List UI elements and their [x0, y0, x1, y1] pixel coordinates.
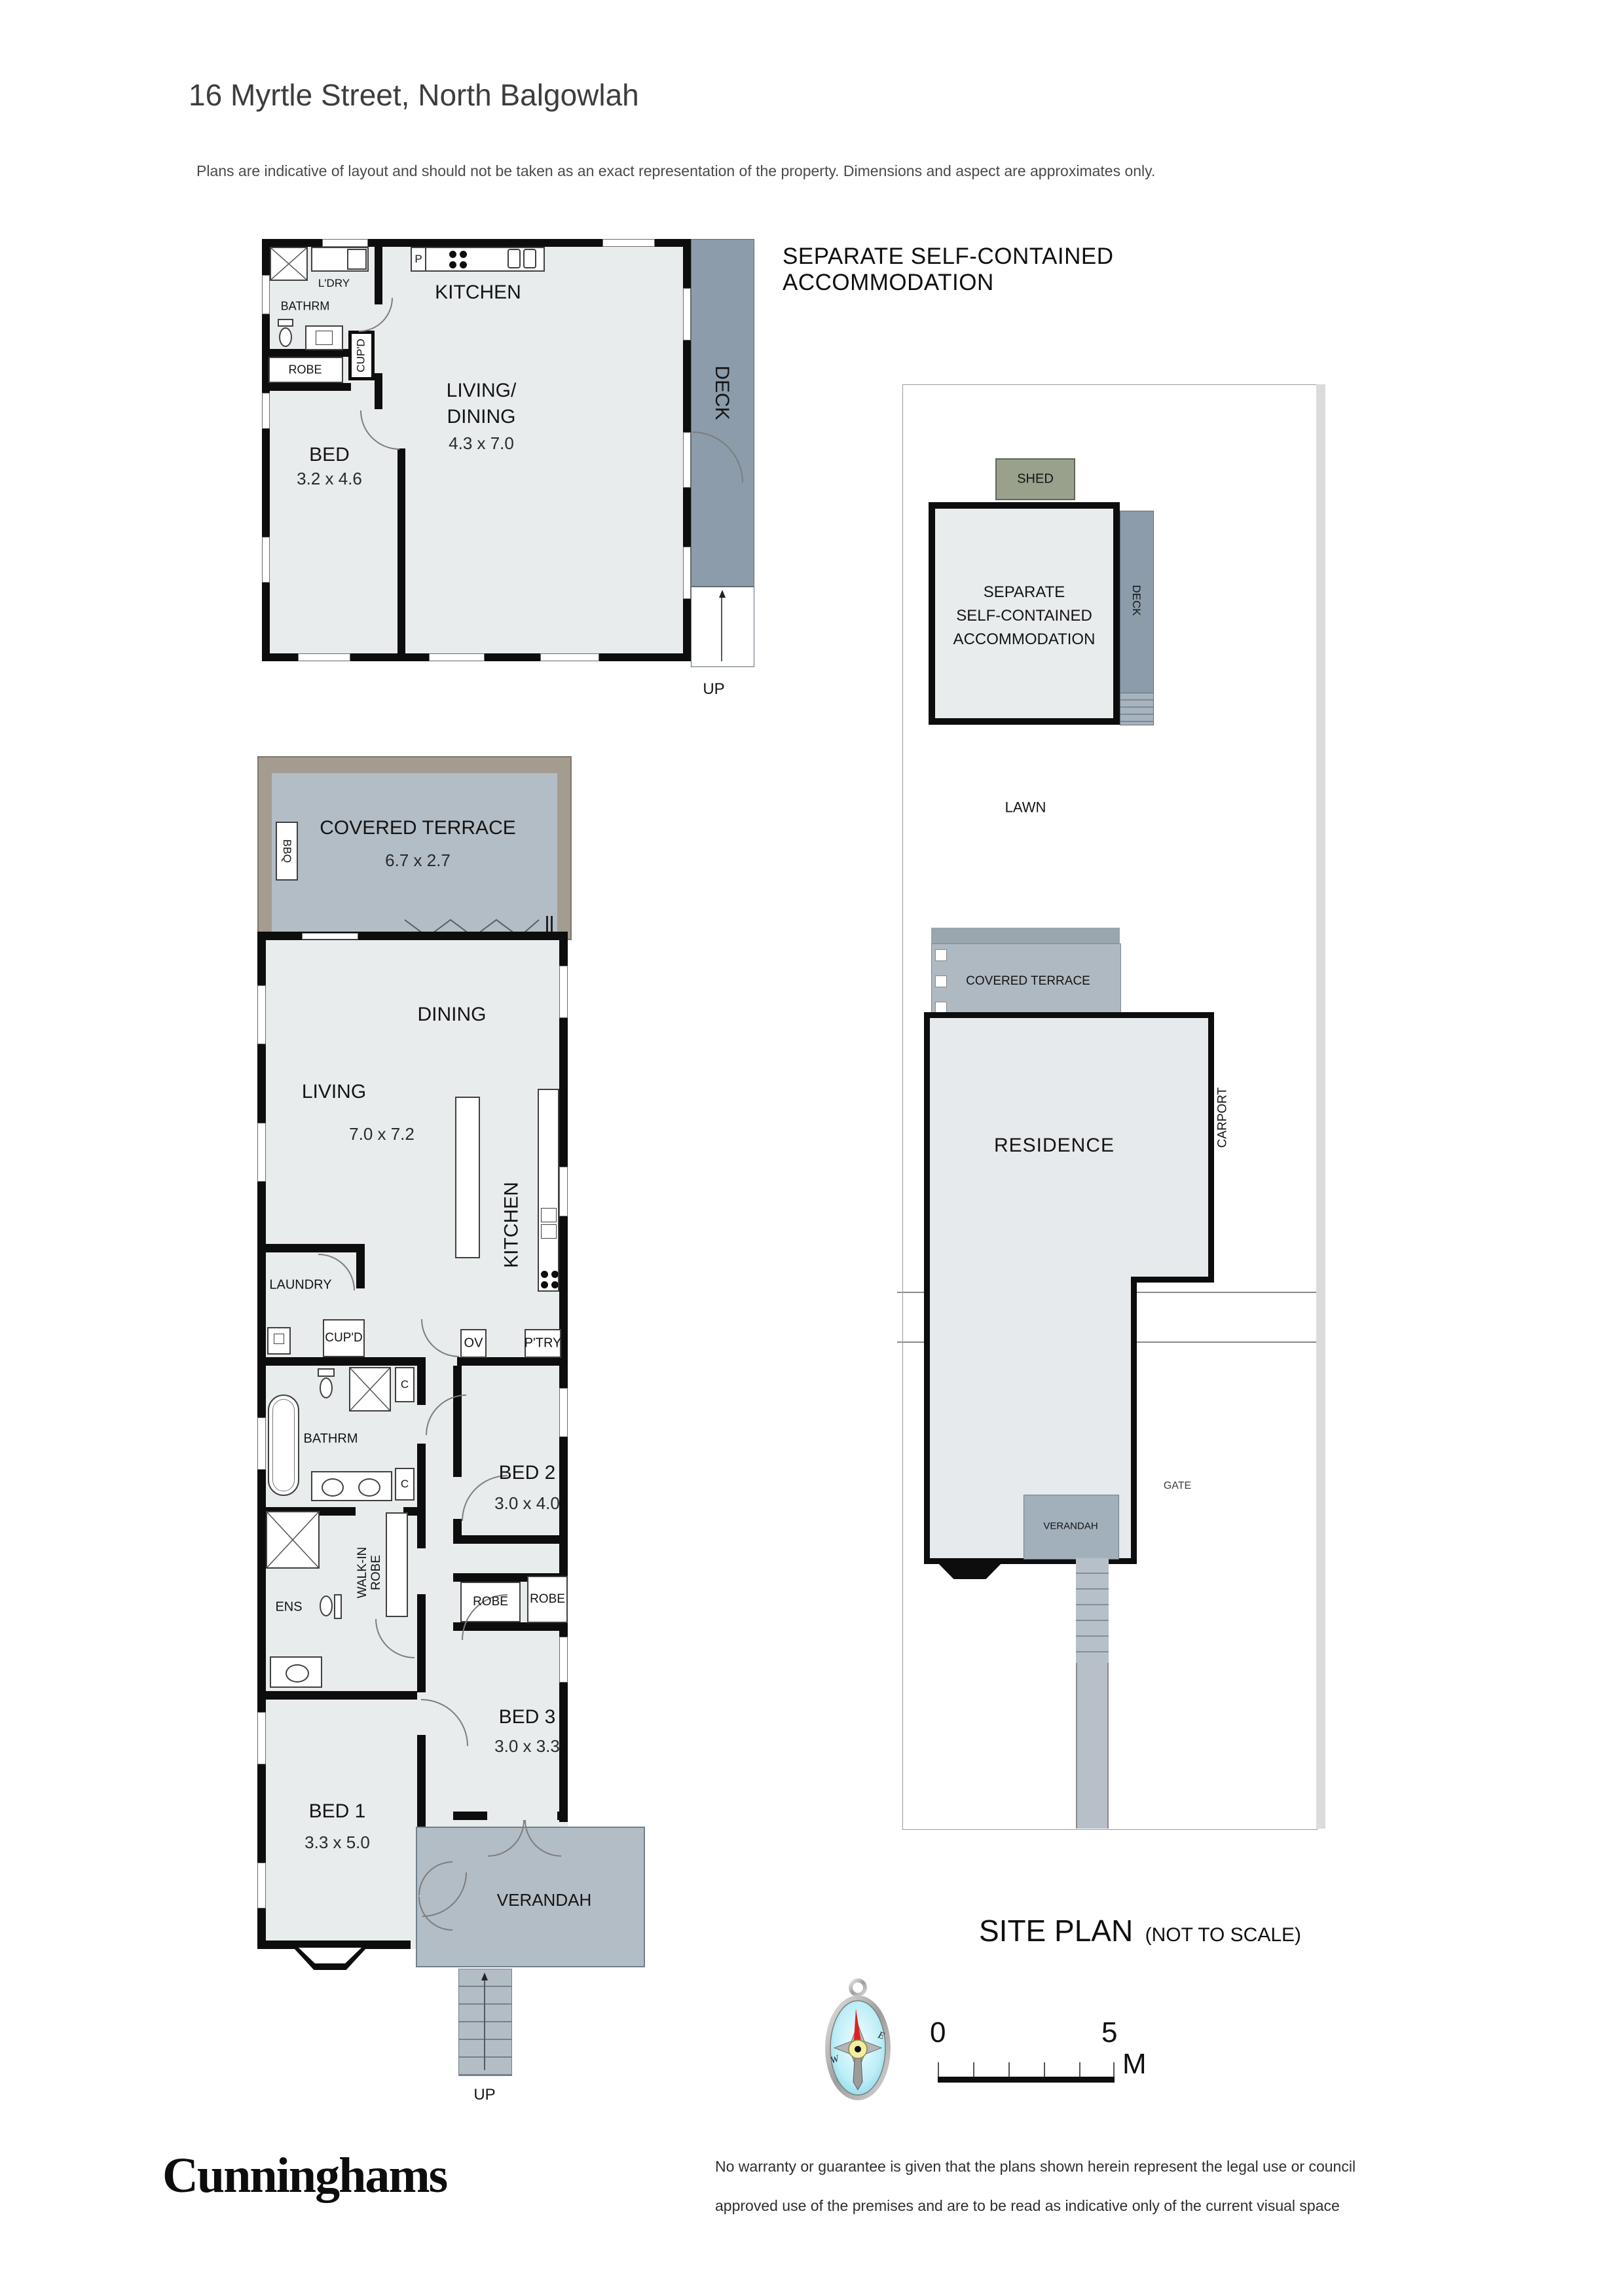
unit-room-label-pantry: P	[415, 253, 422, 266]
window	[683, 288, 691, 340]
main-room-label-laundry: LAUNDRY	[269, 1278, 331, 1293]
window	[257, 1863, 266, 1908]
window	[302, 933, 358, 939]
main-room-label-robe1: ROBE	[473, 1595, 508, 1609]
main-room-label-bed2: BED 2	[499, 1462, 556, 1485]
window	[540, 653, 599, 661]
wall	[559, 932, 568, 1822]
wall	[457, 1357, 559, 1366]
main-room-label-bed3: BED 3	[499, 1706, 556, 1729]
window	[559, 1637, 568, 1683]
wall	[266, 1244, 365, 1252]
scalebar-tick	[1079, 2062, 1080, 2077]
scalebar-tick	[1008, 2062, 1010, 2077]
window	[559, 1167, 568, 1216]
window	[262, 275, 270, 314]
main-room-label-walkin: WALK-IN ROBE	[356, 1547, 384, 1598]
wall	[262, 383, 351, 391]
site-label-shed: SHED	[1017, 472, 1054, 487]
wall	[266, 1357, 426, 1366]
main-room-label-dining: DINING	[418, 1004, 487, 1027]
wall	[375, 373, 382, 409]
laundry-tub	[267, 1327, 291, 1355]
wall	[417, 1594, 426, 1692]
scalebar-tick	[938, 2062, 939, 2077]
scalebar-tick	[1113, 2062, 1115, 2077]
wall	[417, 1735, 426, 1820]
stair-rail-line	[721, 592, 722, 661]
wall	[257, 1691, 417, 1700]
site-label-deck: DECK	[1130, 585, 1143, 615]
site-label-accom-3: ACCOMMODATION	[953, 630, 1096, 649]
scalebar-tick	[1044, 2062, 1045, 2077]
compass-icon: W E	[822, 1977, 896, 2105]
main-room-label-kitchen: KITCHEN	[501, 1182, 523, 1268]
site-front-steps	[1076, 1558, 1109, 1663]
disclaimer-text: Plans are indicative of layout and shoul…	[196, 162, 1155, 180]
site-plan-title: SITE PLAN	[979, 1914, 1133, 1948]
site-accom-deck-stairs	[1120, 693, 1154, 725]
unit-room-label-cupd: CUP'D	[356, 338, 368, 372]
wall	[453, 1535, 568, 1544]
stove-burner-icon	[449, 261, 456, 268]
scalebar-zero: 0	[930, 2016, 946, 2049]
unit-room-label-deck: DECK	[710, 365, 733, 420]
site-label-accom-2: SELF-CONTAINED	[956, 607, 1092, 625]
wardrobe	[386, 1512, 408, 1617]
main-room-label-cupd: CUP'D	[325, 1331, 362, 1345]
site-label-terrace: COVERED TERRACE	[966, 974, 1090, 989]
wall	[356, 1252, 365, 1288]
main-room-label-ptry: P'TRY	[525, 1336, 562, 1351]
window	[262, 537, 270, 583]
window	[559, 1388, 568, 1437]
verandah-steps	[458, 1969, 512, 2076]
site-label-gate: GATE	[1164, 1480, 1191, 1492]
sink	[507, 249, 521, 268]
sink	[523, 249, 536, 268]
shower	[349, 1367, 391, 1412]
site-neighbor-strip	[1316, 384, 1325, 1829]
main-room-dims-bed3: 3.0 x 3.3	[494, 1737, 560, 1757]
unit-room-label-robe: ROBE	[288, 363, 322, 377]
window	[257, 985, 266, 1044]
site-plan-subtitle: (NOT TO SCALE)	[1145, 1924, 1301, 1946]
unit-room-label-bed: BED	[309, 444, 350, 467]
stove-burner-icon	[449, 251, 456, 258]
unit-room-label-ldry: L'DRY	[318, 277, 350, 290]
vanity	[305, 325, 343, 350]
scalebar-five: 5	[1101, 2016, 1117, 2049]
unit-room-dims-bed: 3.2 x 4.6	[297, 469, 362, 489]
main-room-label-living: LIVING	[302, 1081, 366, 1104]
main-room-label-ov: OV	[464, 1336, 483, 1351]
wall	[557, 1812, 568, 1820]
site-terrace-band	[931, 928, 1120, 943]
main-room-label-bbq: BBQ	[280, 839, 293, 863]
window	[429, 653, 485, 661]
site-label-accom-1: SEPARATE	[984, 583, 1065, 602]
site-label-verandah: VERANDAH	[1043, 1520, 1098, 1531]
wall	[417, 1366, 426, 1405]
window	[257, 1123, 266, 1182]
wall	[397, 448, 405, 653]
stair-rail-line	[484, 1975, 485, 2070]
main-room-label-ens: ENS	[275, 1600, 302, 1615]
window	[257, 1712, 266, 1764]
main-up-label: UP	[473, 2086, 495, 2104]
window	[683, 547, 691, 599]
stove-burner-icon	[551, 1281, 559, 1288]
vanity	[270, 1656, 322, 1688]
window	[602, 239, 655, 247]
shower	[270, 247, 308, 281]
site-plan: SHED DECK SEPARATE SELF-CONTAINED ACCOMM…	[897, 363, 1329, 1882]
scalebar	[938, 2077, 1115, 2083]
sink	[541, 1208, 557, 1222]
main-room-dims-bed2: 3.0 x 4.0	[494, 1494, 560, 1514]
stove-burner-icon	[460, 251, 467, 258]
stove-burner-icon	[460, 261, 467, 268]
unit-room-label-dining: DINING	[447, 406, 516, 429]
terrace-post	[935, 949, 947, 961]
laundry-sink	[347, 249, 367, 270]
window	[559, 966, 568, 1018]
main-floorplan: BBQ COVERED TERRACE 6.7 x 2.7	[257, 756, 697, 2118]
unit-room-dims-living: 4.3 x 7.0	[449, 434, 514, 454]
brand-logo: Cunninghams	[162, 2147, 447, 2204]
main-room-dims-bed1: 3.3 x 5.0	[304, 1833, 370, 1853]
unit-room-label-kitchen: KITCHEN	[435, 282, 521, 304]
main-room-label-bathrm: BATHRM	[304, 1432, 358, 1447]
main-room-dims-terrace: 6.7 x 2.7	[385, 851, 451, 871]
unit-up-label: UP	[703, 680, 724, 699]
stove-burner-icon	[551, 1271, 559, 1278]
wall	[375, 239, 382, 304]
kitchen-bench	[538, 1089, 559, 1292]
main-room-dims-living: 7.0 x 7.2	[349, 1125, 415, 1144]
unit-floorplan: DECK UP	[262, 239, 760, 723]
window	[298, 653, 350, 661]
unit-room-label-bathrm: BATHRM	[281, 300, 330, 314]
stove-burner-icon	[541, 1271, 548, 1278]
stove-burner-icon	[541, 1281, 548, 1288]
stair-up-arrow-icon	[481, 1973, 488, 1980]
wall	[453, 1812, 487, 1820]
site-plan-title-row: SITE PLAN (NOT TO SCALE)	[979, 1913, 1301, 1948]
window	[257, 1417, 266, 1470]
bathtub	[268, 1394, 299, 1496]
main-room-label-robe2: ROBE	[530, 1592, 565, 1607]
window	[262, 393, 270, 429]
site-label-lawn: LAWN	[1005, 799, 1046, 815]
footer-disclaimer-line1: No warranty or guarantee is given that t…	[715, 2158, 1356, 2176]
wall	[417, 1507, 426, 1548]
unit-deck-stairs	[691, 586, 754, 667]
hedge	[897, 2164, 918, 2296]
main-room-label-verandah: VERANDAH	[497, 1891, 591, 1910]
scalebar-tick	[973, 2062, 974, 2077]
shower	[266, 1511, 320, 1569]
unit-heading: SEPARATE SELF-CONTAINED ACCOMMODATION	[783, 244, 1319, 296]
sink	[541, 1224, 557, 1239]
scalebar-unit: M	[1122, 2048, 1147, 2081]
main-room-label-c2: C	[401, 1478, 409, 1491]
footer-disclaimer-line2: approved use of the premises and are to …	[715, 2197, 1340, 2215]
window	[322, 239, 368, 247]
site-label-residence: RESIDENCE	[994, 1135, 1115, 1157]
kitchen-island	[455, 1097, 480, 1258]
terrace-post	[935, 975, 947, 987]
main-room-label-bed1: BED 1	[309, 1800, 366, 1823]
hedge	[897, 2104, 1091, 2135]
vanity	[311, 1471, 392, 1501]
floorplan-page: 16 Myrtle Street, North Balgowlah Plans …	[0, 0, 1624, 2296]
site-label-carport: CARPORT	[1217, 1087, 1230, 1148]
door-opening	[683, 432, 691, 488]
page-title: 16 Myrtle Street, North Balgowlah	[189, 77, 639, 113]
main-room-label-terrace: COVERED TERRACE	[320, 817, 516, 840]
unit-room-label-living: LIVING/	[447, 380, 517, 403]
stair-up-arrow-icon	[719, 590, 726, 598]
wall	[417, 1444, 426, 1507]
main-room-label-c1: C	[401, 1378, 409, 1391]
